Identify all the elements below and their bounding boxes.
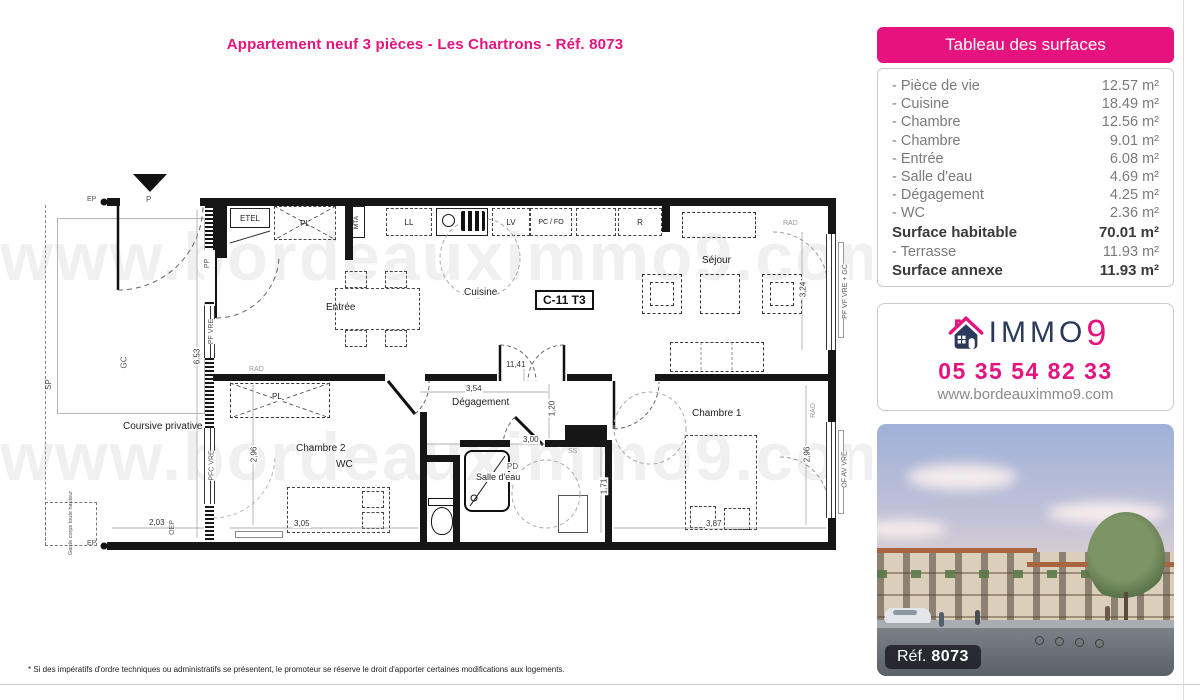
pd-label: PD: [507, 462, 518, 471]
wall-sdb-top-a: [460, 440, 510, 447]
room-label-salle-eau: Salle d'eau: [476, 472, 520, 482]
pl2-label: PL: [272, 392, 282, 401]
duct-ss: [565, 425, 607, 440]
garde-corps-label: Garde corps toute hauteur: [68, 478, 74, 568]
dim-6-53: 6,53: [192, 348, 201, 366]
room-label-wc: WC: [336, 459, 353, 470]
ep-label-top: EP: [87, 196, 96, 203]
sp-label: SP: [44, 379, 53, 390]
wall-h3: [567, 374, 612, 381]
dim-3-24: 3,24: [798, 281, 807, 299]
door-gap-pp: [204, 250, 215, 302]
pfc-vre-label: PFC VRE: [209, 450, 216, 480]
dim-11-41: 11,41: [505, 360, 526, 369]
dim-2-96-left: 2,96: [249, 446, 258, 464]
dim-3-05: 3,05: [293, 519, 311, 528]
wall-right-1: [828, 206, 836, 234]
wall-top-b: [200, 198, 836, 206]
wall-bottom: [107, 542, 836, 550]
room-label-sejour: Séjour: [702, 255, 731, 266]
wall-wc-sdb: [453, 462, 460, 542]
dim-3-87: 3,87: [705, 519, 723, 528]
sink-icon: [442, 214, 455, 227]
room-label-coursive: Coursive privative: [123, 421, 202, 432]
hob-icon: [461, 211, 485, 231]
wall-h1: [213, 374, 385, 381]
wall-ch2-wc: [420, 412, 427, 542]
ref-value: 8073: [931, 648, 969, 665]
dim-2-96-right: 2,96: [802, 446, 811, 464]
window-right-sejour: [826, 234, 836, 350]
page: Appartement neuf 3 pièces - Les Chartron…: [0, 0, 1200, 700]
wall-wc-top: [420, 455, 460, 462]
wall-pillar-entree: [213, 206, 227, 258]
wall-h4: [655, 374, 828, 381]
ss-label: SS: [568, 448, 577, 455]
wall-right-2: [828, 350, 836, 422]
wall-h2: [425, 374, 497, 381]
dim-1-20: 1,20: [547, 400, 556, 418]
ep-label-bottom: EP: [87, 540, 96, 547]
pp-label: PP: [204, 259, 211, 268]
pf-vf-vre-gc-label: PF VF VRE + GC: [842, 264, 849, 319]
room-label-chambre2: Chambre 2: [296, 443, 345, 454]
ref-badge: Réf.8073: [885, 645, 981, 669]
plan-linework: [0, 0, 1200, 700]
ref-label: Réf.: [897, 648, 926, 665]
of-av-vre-label: OF AV VRE: [842, 451, 849, 487]
gc-label: GC: [120, 357, 129, 369]
pf-vre-label: PF VRE: [208, 319, 215, 344]
dim-3-54: 3,54: [465, 384, 483, 393]
rad-label-sejour: RAD: [783, 220, 798, 227]
room-label-entree: Entrée: [326, 302, 355, 313]
dim-2-03: 2,03: [148, 518, 166, 527]
rad-label-entree: RAD: [249, 366, 264, 373]
rad-label-chambre1: RAD: [810, 403, 817, 418]
wall-stub-kitchen: [345, 206, 353, 260]
dim-1-71: 1,71: [599, 478, 608, 496]
room-label-chambre1: Chambre 1: [692, 408, 741, 419]
wall-sdb-top-b: [545, 440, 605, 447]
p-label: P: [146, 195, 151, 204]
wall-right-3: [828, 518, 836, 542]
wall-top-a: [107, 198, 120, 206]
room-label-cuisine: Cuisine: [464, 287, 497, 298]
window-right-chambre1: [826, 422, 836, 518]
unit-label: C-11 T3: [535, 290, 594, 310]
dim-3-00: 3,00: [522, 435, 540, 444]
oep-label: OEP: [169, 520, 176, 535]
wall-stub-kitchen-end: [662, 206, 670, 232]
room-label-degagement: Dégagement: [452, 397, 509, 408]
